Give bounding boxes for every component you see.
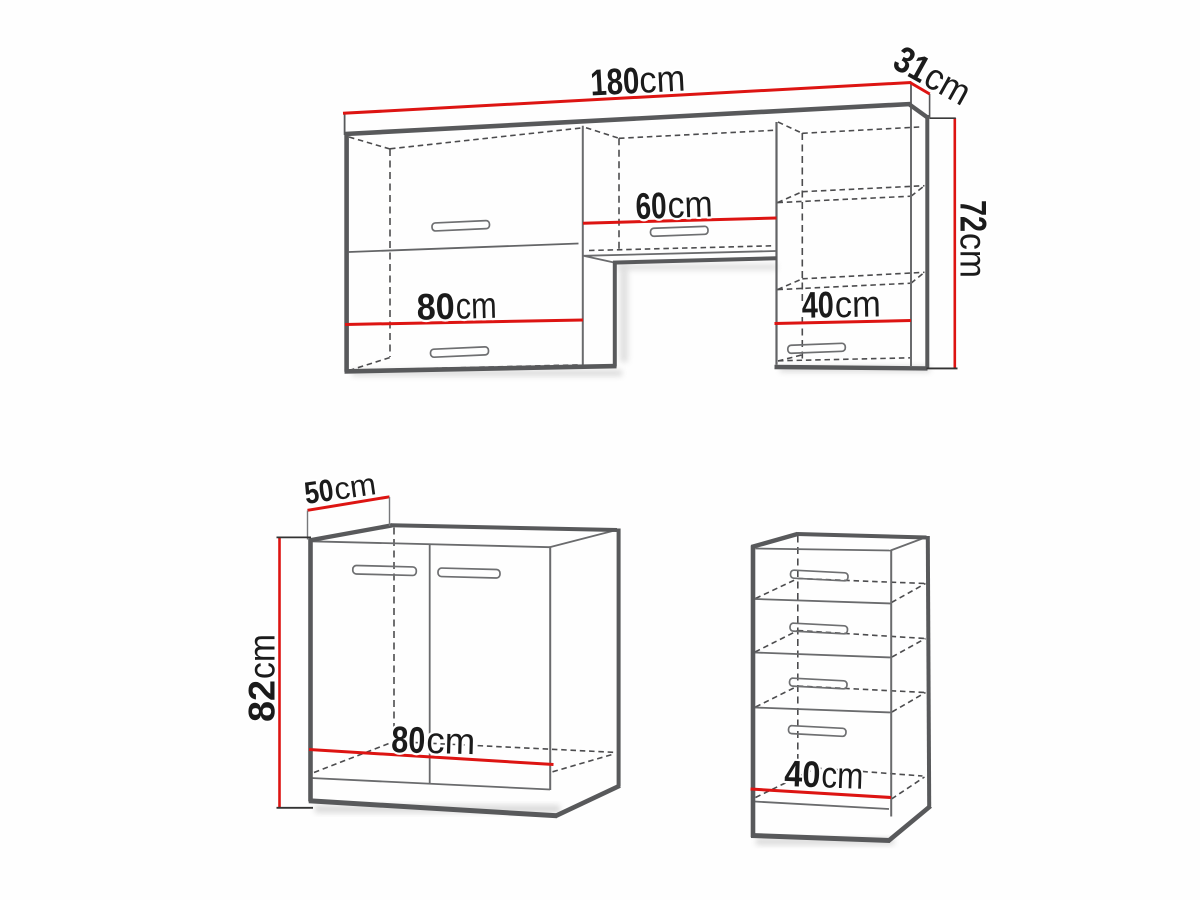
- svg-text:80cm: 80cm: [391, 719, 476, 762]
- svg-text:80cm: 80cm: [416, 285, 497, 328]
- svg-text:40cm: 40cm: [801, 283, 881, 325]
- svg-text:60cm: 60cm: [635, 183, 713, 227]
- svg-text:180cm: 180cm: [589, 58, 686, 104]
- svg-text:82cm: 82cm: [242, 634, 283, 722]
- svg-text:72cm: 72cm: [953, 200, 994, 278]
- svg-text:40cm: 40cm: [784, 753, 864, 797]
